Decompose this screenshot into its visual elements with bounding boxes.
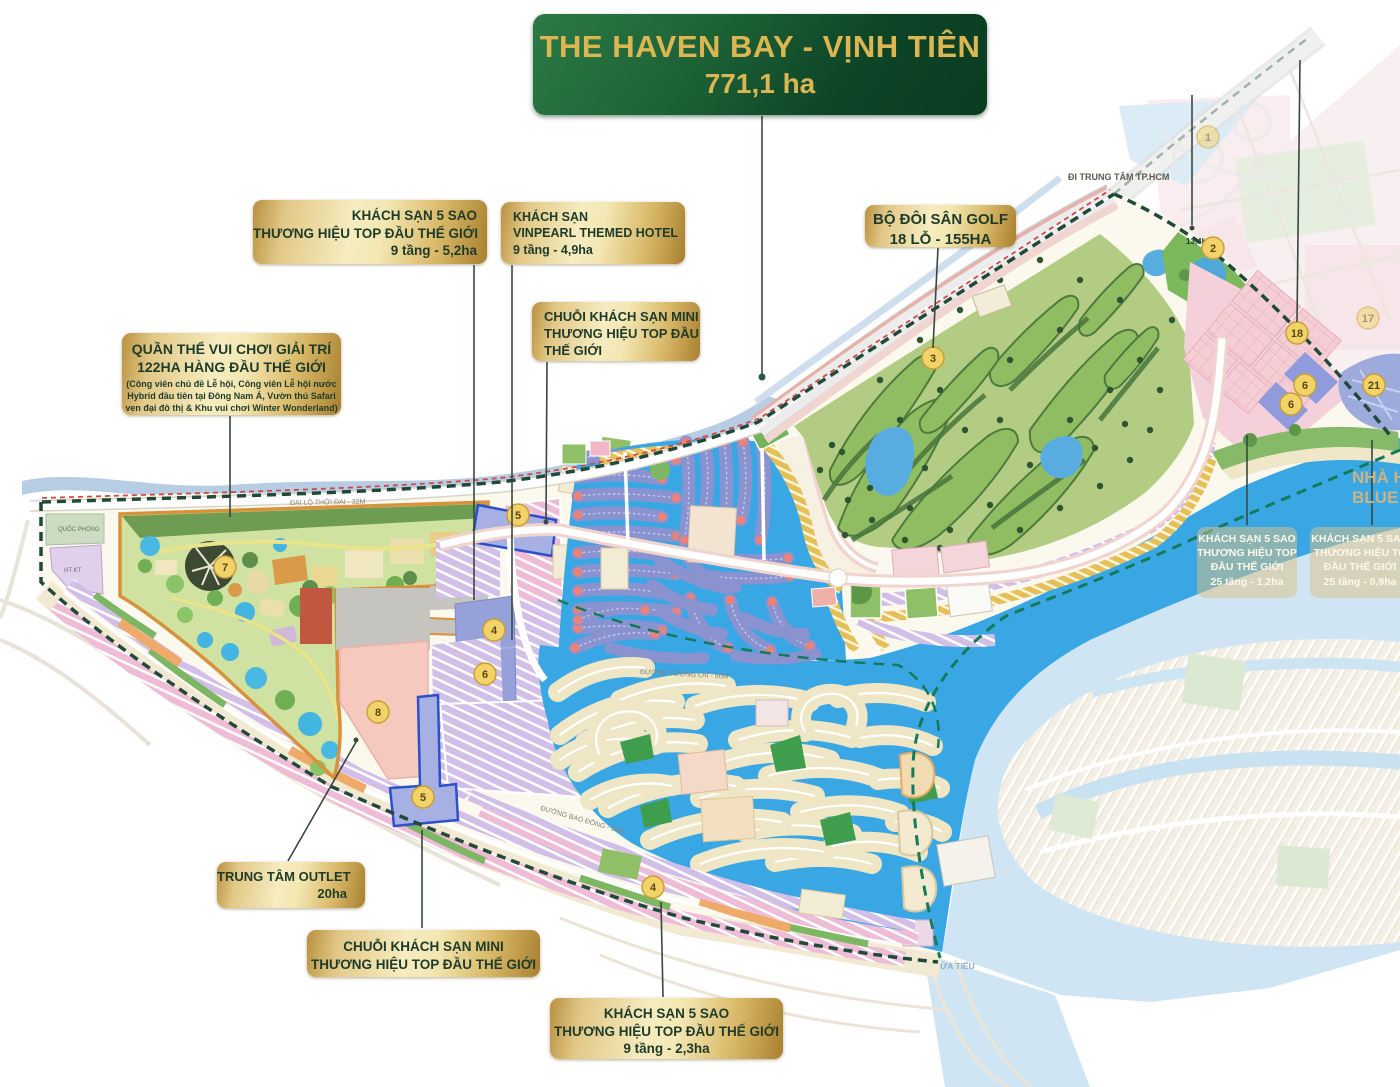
svg-text:HT KT: HT KT — [64, 568, 82, 574]
svg-text:3: 3 — [930, 353, 936, 365]
svg-text:6: 6 — [1302, 380, 1308, 392]
svg-text:6: 6 — [1288, 399, 1294, 411]
svg-text:17: 17 — [1362, 313, 1374, 325]
svg-text:4: 4 — [650, 882, 657, 894]
svg-text:4: 4 — [491, 625, 498, 637]
svg-text:1: 1 — [1205, 132, 1211, 144]
svg-text:6: 6 — [482, 669, 488, 681]
svg-text:8: 8 — [375, 707, 381, 719]
svg-text:QUỐC PHÒNG: QUỐC PHÒNG — [58, 526, 100, 533]
svg-text:ĐI TRUNG TÂM TP.HCM: ĐI TRUNG TÂM TP.HCM — [1068, 171, 1169, 182]
svg-text:21: 21 — [1368, 380, 1380, 392]
svg-text:5: 5 — [515, 510, 521, 522]
svg-text:5: 5 — [420, 792, 426, 804]
svg-text:7: 7 — [222, 562, 228, 574]
svg-text:18: 18 — [1291, 328, 1303, 340]
svg-text:2: 2 — [1210, 243, 1216, 255]
